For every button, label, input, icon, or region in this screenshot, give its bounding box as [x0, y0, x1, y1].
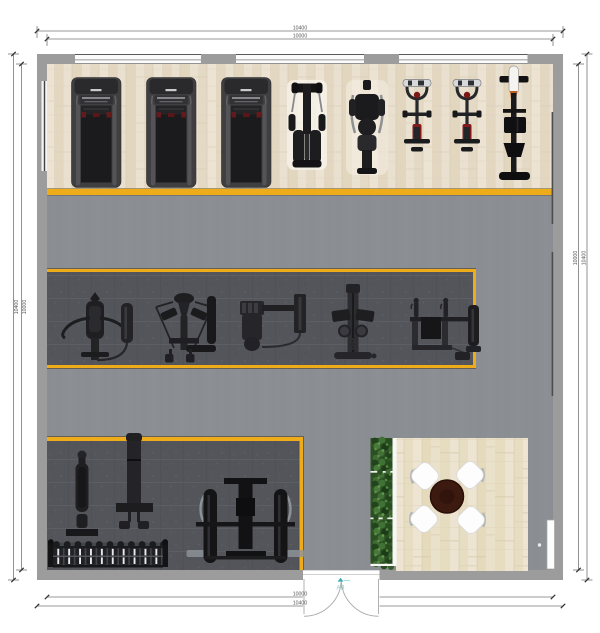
svg-text:10000: 10000	[293, 592, 308, 598]
svg-text:AB: AB	[336, 586, 344, 592]
svg-text:10400: 10400	[293, 601, 308, 607]
svg-text:10000: 10000	[22, 300, 28, 315]
svg-text:10400: 10400	[293, 26, 308, 32]
svg-text:10400: 10400	[14, 300, 20, 315]
svg-text:10000: 10000	[573, 251, 579, 266]
svg-text:10000: 10000	[293, 34, 308, 40]
svg-text:10400: 10400	[582, 251, 588, 266]
